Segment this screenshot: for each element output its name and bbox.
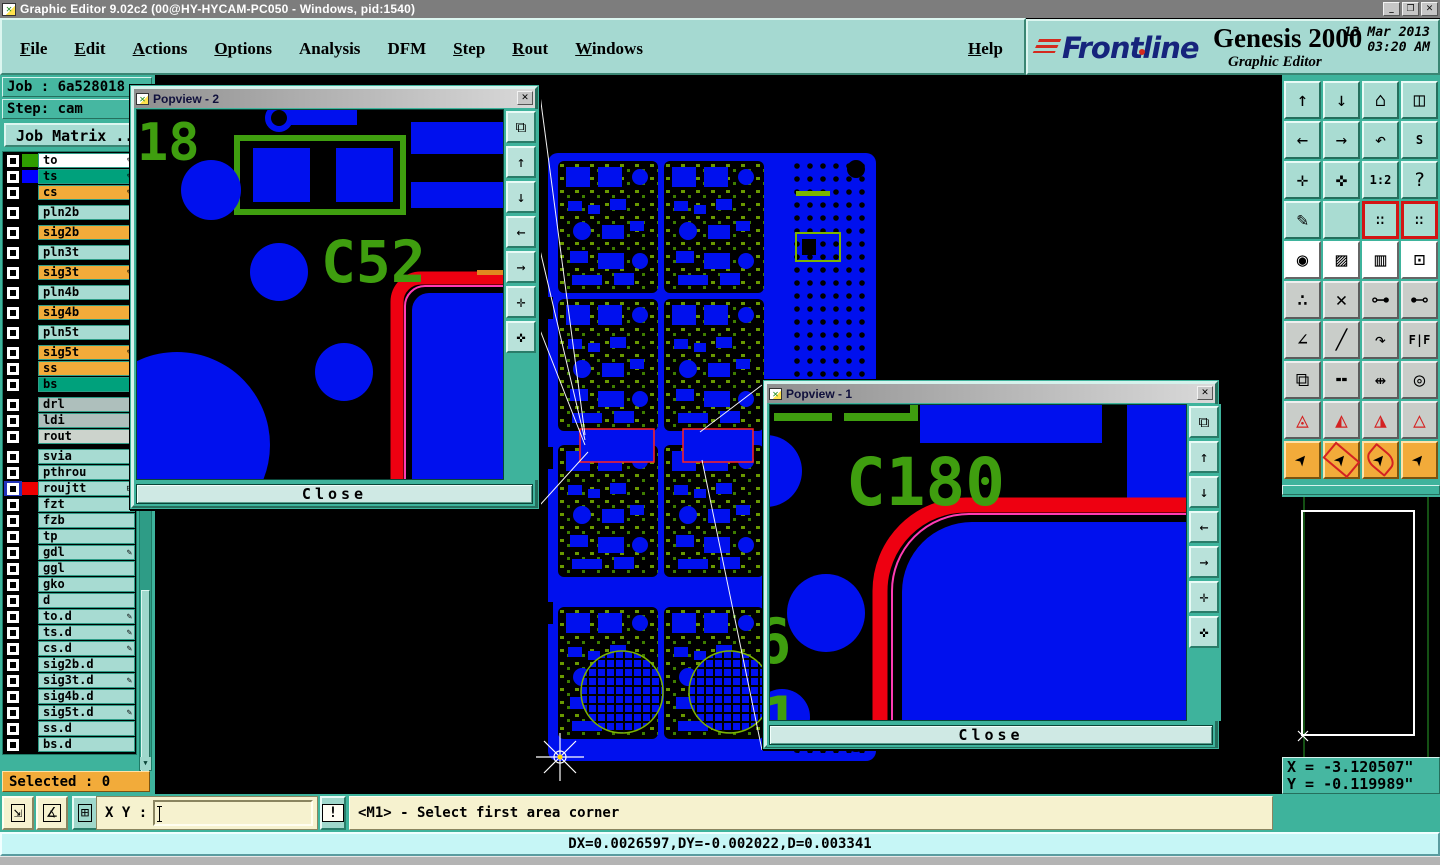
silkscreen-label: C180	[846, 444, 1005, 521]
pop-left-button[interactable]: ←	[506, 216, 536, 248]
layer-color-swatch[interactable]	[22, 206, 38, 219]
minimize-button[interactable]: _	[1383, 2, 1400, 16]
layer-color-swatch[interactable]	[22, 530, 38, 543]
layer-color-swatch[interactable]	[22, 642, 38, 655]
view-right-button[interactable]: →	[1323, 121, 1360, 159]
layer-name[interactable]: sig5t.d	[43, 706, 127, 719]
layer-row[interactable]: bs	[4, 377, 135, 392]
layer-name[interactable]: sig5t	[43, 346, 127, 359]
right-panel: ↑↓⌂◫←→↶S✛✜1:2?✎∷∷◉▨▥⊡∴✕⊶⊷∠╱↷F|F⧉╍⇹◎◬◭◮△➤…	[1282, 75, 1440, 832]
command-bar: ⇲∡⊞ X Y : ! <M1> - Select first area cor…	[0, 794, 1440, 832]
layer-name[interactable]: to.d	[43, 610, 127, 623]
move-feature-button[interactable]: ⊶	[1362, 281, 1399, 319]
pop-down-button[interactable]: ↓	[1189, 476, 1219, 508]
restore-button[interactable]: ❐	[1402, 2, 1419, 16]
item-options[interactable]: Options	[214, 39, 272, 59]
layer-color-swatch[interactable]	[22, 706, 38, 719]
layer-visibility-checkbox[interactable]	[4, 641, 22, 656]
popview-2-close-icon[interactable]: ✕	[517, 91, 533, 105]
layer-row[interactable]: pln3t	[4, 245, 135, 260]
frontline-logo: Frontline	[1062, 31, 1199, 65]
layer-name[interactable]: fzb	[43, 514, 132, 527]
merge-shapes-button[interactable]: ◎	[1401, 361, 1438, 399]
layer-visibility-checkbox[interactable]	[4, 245, 22, 260]
layer-visibility-checkbox[interactable]	[4, 625, 22, 640]
layer-name[interactable]: tp	[43, 530, 132, 543]
layer-name[interactable]: pln4b	[43, 286, 132, 299]
pop-up-button[interactable]: ↑	[506, 146, 536, 178]
layer-color-swatch[interactable]	[22, 226, 38, 239]
title-bar[interactable]: ✕ Graphic Editor 9.02c2 (00@HY-HYCAM-PC0…	[0, 0, 1440, 18]
layer-visibility-checkbox[interactable]	[4, 345, 22, 360]
dimension-button[interactable]: ⇹	[1362, 361, 1399, 399]
draw-line-button[interactable]: ╱	[1323, 321, 1360, 359]
silkscreen-partial-label: 18	[137, 113, 200, 173]
pop-right-button[interactable]: →	[1189, 546, 1219, 578]
select-in-poly-button[interactable]: ➤	[1362, 441, 1399, 479]
layer-visibility-checkbox[interactable]	[4, 225, 22, 240]
rotate-feature-button[interactable]: ↷	[1362, 321, 1399, 359]
net-probe-1-button[interactable]: ∷	[1362, 201, 1399, 239]
selected-count: Selected : 0	[2, 771, 150, 792]
item-windows[interactable]: Windows	[575, 39, 643, 59]
datetime: 13 Mar 2013 03:20 AM	[1344, 25, 1430, 55]
layer-name[interactable]: bs.d	[43, 738, 132, 751]
layer-visibility-checkbox[interactable]	[4, 413, 22, 428]
layer-row[interactable]: sig3t.d✎	[4, 673, 135, 688]
layer-name[interactable]: cs	[43, 186, 127, 199]
layer-name[interactable]: ggl	[43, 562, 132, 575]
dfm-check-4-button[interactable]: △	[1401, 401, 1438, 439]
layer-visibility-checkbox[interactable]	[4, 205, 22, 220]
layer-row[interactable]: d	[4, 593, 135, 608]
pop-window-button[interactable]: ⧉	[1189, 406, 1219, 438]
menu-bar: FileEditActionsOptionsAnalysisDFMStepRou…	[0, 18, 1026, 75]
layer-row[interactable]: to.d✎	[4, 609, 135, 624]
layer-visibility-checkbox[interactable]	[4, 361, 22, 376]
popview-2-toolbar: ⧉↑↓←→✛✜	[504, 109, 538, 480]
layer-row[interactable]: sig4b.d	[4, 689, 135, 704]
layer-visibility-checkbox[interactable]	[4, 529, 22, 544]
bottom-strip	[0, 856, 1440, 865]
layer-row[interactable]: pln2b	[4, 205, 135, 220]
layer-color-swatch[interactable]	[22, 658, 38, 671]
view-up-button[interactable]: ↑	[1284, 81, 1321, 119]
layer-color-swatch[interactable]	[22, 610, 38, 623]
layer-name[interactable]: svia	[43, 450, 132, 463]
view-left-button[interactable]: ←	[1284, 121, 1321, 159]
layer-row[interactable]: ts.d✎	[4, 625, 135, 640]
pop-zoom-in-button[interactable]: ✜	[506, 321, 536, 353]
layer-visibility-checkbox[interactable]	[4, 481, 22, 496]
graphic-editor-window: ✕ Graphic Editor 9.02c2 (00@HY-HYCAM-PC0…	[0, 0, 1440, 865]
chain-select-button[interactable]: ∴	[1284, 281, 1321, 319]
layer-color-swatch[interactable]	[22, 722, 38, 735]
zoom-center-button[interactable]: ✜	[1323, 161, 1360, 199]
serpentine-view-button[interactable]: S	[1401, 121, 1438, 159]
grid-toggle-button[interactable]	[1323, 201, 1360, 239]
layer-name[interactable]: cs.d	[43, 642, 127, 655]
layer-scroll-down-icon[interactable]: ▼	[140, 757, 151, 770]
product-subtitle: Graphic Editor	[1228, 54, 1322, 71]
view-down-button[interactable]: ↓	[1323, 81, 1360, 119]
grid-snap-button[interactable]: ⊞	[72, 796, 98, 830]
layer-name[interactable]: sig4b.d	[43, 690, 132, 703]
layer-name[interactable]: drl	[43, 398, 132, 411]
layer-row[interactable]: ss.d	[4, 721, 135, 736]
dfm-check-3-button[interactable]: ◮	[1362, 401, 1399, 439]
previous-view-button[interactable]: ↶	[1362, 121, 1399, 159]
layer-name[interactable]: sig2b	[43, 226, 132, 239]
popview-1-window[interactable]: ✕ Popview - 1 ✕ C180 6 1	[762, 379, 1220, 750]
layer-row[interactable]: ts✎	[4, 169, 135, 184]
overview-pane[interactable]	[1282, 497, 1440, 757]
layer-color-swatch[interactable]	[22, 626, 38, 639]
layer-color-swatch[interactable]	[22, 286, 38, 299]
layer-list: to✎ ts✎ cs✎ pln2b sig2b	[2, 151, 137, 755]
layer-row[interactable]: pln4b	[4, 285, 135, 300]
layer-row[interactable]: gdl✎	[4, 545, 135, 560]
layer-color-swatch[interactable]	[22, 482, 38, 495]
layer-name[interactable]: ss	[43, 362, 132, 375]
edit-tools-button[interactable]: ✎	[1284, 201, 1321, 239]
layer-color-swatch[interactable]	[22, 546, 38, 559]
duplicate-button[interactable]: ⧉	[1284, 361, 1321, 399]
layer-name[interactable]: pln3t	[43, 246, 132, 259]
layer-name[interactable]: ts.d	[43, 626, 127, 639]
popview-1-canvas[interactable]: C180 6 1	[769, 404, 1187, 721]
layer-row[interactable]: bs.d	[4, 737, 135, 752]
item-step[interactable]: Step	[453, 39, 485, 59]
layer-row[interactable]: ss	[4, 361, 135, 376]
measure-angle-button[interactable]: ∡	[36, 796, 68, 830]
layer-name[interactable]: sig2b.d	[43, 658, 132, 671]
pop-down-button[interactable]: ↓	[506, 181, 536, 213]
layer-color-swatch[interactable]	[22, 562, 38, 575]
popview-1-close-icon[interactable]: ✕	[1197, 386, 1213, 400]
layer-name[interactable]: roujtt	[43, 482, 127, 495]
layer-name[interactable]: gdl	[43, 546, 127, 559]
layer-color-swatch[interactable]	[22, 346, 38, 359]
select-symbol-button[interactable]: ◉	[1284, 241, 1321, 279]
measure-objects-button[interactable]: ▨	[1323, 241, 1360, 279]
popview-2-titlebar[interactable]: ✕ Popview - 2 ✕	[134, 89, 535, 108]
layer-visibility-checkbox[interactable]	[4, 185, 22, 200]
net-probe-2-button[interactable]: ∷	[1401, 201, 1438, 239]
job-matrix-button[interactable]: Job Matrix ..	[4, 123, 149, 147]
layer-visibility-checkbox[interactable]	[4, 285, 22, 300]
layer-color-swatch[interactable]	[22, 186, 38, 199]
layer-row[interactable]: ggl	[4, 561, 135, 576]
layer-row[interactable]: pln5t	[4, 325, 135, 340]
pop-right-button[interactable]: →	[506, 251, 536, 283]
layer-row[interactable]: tp	[4, 529, 135, 544]
pop-up-button[interactable]: ↑	[1189, 441, 1219, 473]
xy-entry-panel: X Y :	[96, 796, 318, 830]
layer-row[interactable]: to✎	[4, 153, 135, 168]
window-title: Graphic Editor 9.02c2 (00@HY-HYCAM-PC050…	[20, 2, 415, 16]
zoom-extents-button[interactable]: ✛	[1284, 161, 1321, 199]
layer-row[interactable]: rout	[4, 429, 135, 444]
popview-1-close-button[interactable]: Close	[769, 725, 1213, 745]
layer-row[interactable]: svia	[4, 449, 135, 464]
layer-marker-icon: ✎	[127, 628, 132, 638]
brand-panel: Frontline Genesis 2000 Graphic Editor 13…	[1026, 19, 1440, 75]
layer-color-swatch[interactable]	[22, 170, 38, 183]
stretch-line-button[interactable]: ╍	[1323, 361, 1360, 399]
layer-name[interactable]: rout	[43, 430, 132, 443]
prompt-message: <M1> - Select first area corner	[349, 796, 1273, 830]
popview-2-art: 18 C52	[137, 110, 503, 479]
layer-color-swatch[interactable]	[22, 154, 38, 167]
layer-color-swatch[interactable]	[22, 594, 38, 607]
delete-feature-button[interactable]: ✕	[1323, 281, 1360, 319]
select-pointer-button[interactable]: ➤	[1284, 441, 1321, 479]
layer-visibility-checkbox[interactable]	[4, 169, 22, 184]
popview-1-art: C180 6 1	[770, 405, 1186, 720]
silkscreen-partial-label: 6	[770, 605, 791, 678]
popview-1-titlebar[interactable]: ✕ Popview - 1 ✕	[767, 384, 1215, 403]
layer-visibility-checkbox[interactable]	[4, 305, 22, 320]
layer-name[interactable]: sig3t.d	[43, 674, 127, 687]
measure-diagonal-button[interactable]: ⇲	[2, 796, 34, 830]
layer-row[interactable]: cs.d✎	[4, 641, 135, 656]
layer-visibility-checkbox[interactable]	[4, 513, 22, 528]
layer-row[interactable]: sig2b	[4, 225, 135, 240]
layer-color-swatch[interactable]	[22, 690, 38, 703]
silkscreen-label: C52	[321, 228, 426, 296]
layer-row[interactable]: ldi	[4, 413, 135, 428]
close-button[interactable]: ✕	[1421, 2, 1438, 16]
layer-name[interactable]: d	[43, 594, 132, 607]
home-view-button[interactable]: ⌂	[1362, 81, 1399, 119]
layer-color-swatch[interactable]	[22, 466, 38, 479]
layer-name[interactable]: pthrou	[43, 466, 132, 479]
popview-1-title: Popview - 1	[786, 387, 852, 401]
pop-zoom-in-button[interactable]: ✜	[1189, 616, 1219, 648]
alert-button[interactable]: !	[320, 796, 346, 830]
layer-row[interactable]: cs✎	[4, 185, 135, 200]
popview-2-close-button[interactable]: Close	[136, 484, 533, 504]
layer-visibility-checkbox[interactable]	[4, 737, 22, 752]
layer-marker-icon: ✎	[127, 548, 132, 558]
xy-input[interactable]	[153, 800, 313, 826]
layer-visibility-checkbox[interactable]	[4, 465, 22, 480]
layer-name[interactable]: bs	[43, 378, 132, 391]
item-analysis[interactable]: Analysis	[299, 39, 360, 59]
copy-feature-button[interactable]: ⊷	[1401, 281, 1438, 319]
layer-visibility-checkbox[interactable]	[4, 657, 22, 672]
layer-visibility-checkbox[interactable]	[4, 577, 22, 592]
menu-help[interactable]: Help	[968, 39, 1003, 59]
layer-name[interactable]: pln2b	[43, 206, 132, 219]
layer-color-swatch[interactable]	[22, 246, 38, 259]
layer-name[interactable]: ts	[43, 170, 127, 183]
layer-color-swatch[interactable]	[22, 398, 38, 411]
ruler-button[interactable]: ▥	[1362, 241, 1399, 279]
select-in-rect-button[interactable]: ➤	[1323, 441, 1360, 479]
popview-2-canvas[interactable]: 18 C52	[136, 109, 504, 480]
silkscreen-partial-label: 1	[770, 683, 799, 720]
layer-visibility-checkbox[interactable]	[4, 561, 22, 576]
layer-name[interactable]: sig4b	[43, 306, 132, 319]
popview-icon: ✕	[769, 388, 782, 400]
item-file[interactable]: File	[20, 39, 47, 59]
item-rout[interactable]: Rout	[512, 39, 548, 59]
layer-row[interactable]: sig5t✎	[4, 345, 135, 360]
layer-visibility-checkbox[interactable]	[4, 325, 22, 340]
xy-label: X Y :	[97, 805, 153, 821]
layer-color-swatch[interactable]	[22, 378, 38, 391]
layer-row[interactable]: pthrou	[4, 465, 135, 480]
layer-color-swatch[interactable]	[22, 430, 38, 443]
layer-scrollbar-thumb[interactable]	[141, 590, 150, 778]
split-window-xy-button[interactable]: ◫	[1401, 81, 1438, 119]
layer-name[interactable]: ldi	[43, 414, 132, 427]
layer-visibility-checkbox[interactable]	[4, 609, 22, 624]
layer-row[interactable]: fzt	[4, 497, 135, 512]
pop-zoom-out-button[interactable]: ✛	[506, 286, 536, 318]
mirror-feature-button[interactable]: F|F	[1401, 321, 1438, 359]
layer-visibility-checkbox[interactable]	[4, 497, 22, 512]
layer-color-swatch[interactable]	[22, 738, 38, 751]
layer-color-swatch[interactable]	[22, 498, 38, 511]
layer-marker-icon: ✎	[127, 644, 132, 654]
layer-visibility-checkbox[interactable]	[4, 705, 22, 720]
zoom-1-2-button[interactable]: 1:2	[1362, 161, 1399, 199]
select-net-button[interactable]: ➤	[1401, 441, 1438, 479]
command-tools: ⇲∡⊞	[2, 794, 96, 832]
item-edit[interactable]: Edit	[74, 39, 105, 59]
layer-visibility-checkbox[interactable]	[4, 265, 22, 280]
toolbar-divider	[1282, 485, 1440, 495]
pop-window-button[interactable]: ⧉	[506, 111, 536, 143]
cursor-coordinates: X = -3.120507" Y = -0.119989"	[1282, 757, 1440, 794]
measure-angle-button[interactable]: ∠	[1284, 321, 1321, 359]
layer-visibility-checkbox[interactable]	[4, 449, 22, 464]
layer-visibility-checkbox[interactable]	[4, 545, 22, 560]
layer-row[interactable]: sig4b	[4, 305, 135, 320]
pop-zoom-out-button[interactable]: ✛	[1189, 581, 1219, 613]
layer-visibility-checkbox[interactable]	[4, 397, 22, 412]
item-dfm[interactable]: DFM	[387, 39, 426, 59]
pop-left-button[interactable]: ←	[1189, 511, 1219, 543]
layer-color-swatch[interactable]	[22, 514, 38, 527]
popview-2-window[interactable]: ✕ Popview - 2 ✕ 18 C	[129, 84, 540, 510]
layer-marker-icon: ✎	[127, 676, 132, 686]
layer-visibility-checkbox[interactable]	[4, 593, 22, 608]
layer-visibility-checkbox[interactable]	[4, 721, 22, 736]
layer-name[interactable]: gko	[43, 578, 132, 591]
layer-marker-icon: ✎	[127, 612, 132, 622]
layer-row[interactable]: roujtt⊞	[4, 481, 135, 496]
layer-color-swatch[interactable]	[22, 306, 38, 319]
layer-row[interactable]: sig5t.d✎	[4, 705, 135, 720]
layer-row[interactable]: sig3t✎	[4, 265, 135, 280]
layer-row[interactable]: fzb	[4, 513, 135, 528]
app-icon: ✕	[2, 3, 16, 16]
layer-visibility-checkbox[interactable]	[4, 689, 22, 704]
layer-visibility-checkbox[interactable]	[4, 429, 22, 444]
layer-row[interactable]: sig2b.d	[4, 657, 135, 672]
layer-name[interactable]: pln5t	[43, 326, 132, 339]
layer-marker-icon: ✎	[127, 708, 132, 718]
item-actions[interactable]: Actions	[133, 39, 188, 59]
select-single-button[interactable]: ⊡	[1401, 241, 1438, 279]
layer-color-swatch[interactable]	[22, 578, 38, 591]
layer-name[interactable]: to	[43, 154, 127, 167]
layer-name[interactable]: fzt	[43, 498, 132, 511]
delta-status-bar: DX=0.0026597,DY=-0.002022,D=0.003341	[0, 832, 1440, 856]
layer-visibility-checkbox[interactable]	[4, 377, 22, 392]
dfm-check-1-button[interactable]: ◬	[1284, 401, 1321, 439]
layer-color-swatch[interactable]	[22, 326, 38, 339]
layer-color-swatch[interactable]	[22, 414, 38, 427]
layer-row[interactable]: drl	[4, 397, 135, 412]
menu-items: FileEditActionsOptionsAnalysisDFMStepRou…	[20, 39, 643, 59]
product-name: Genesis 2000	[1213, 23, 1362, 54]
layer-color-swatch[interactable]	[22, 362, 38, 375]
layer-color-swatch[interactable]	[22, 266, 38, 279]
text-caret	[159, 806, 160, 822]
main-toolbar: ↑↓⌂◫←→↶S✛✜1:2?✎∷∷◉▨▥⊡∴✕⊶⊷∠╱↷F|F⧉╍⇹◎◬◭◮△➤…	[1283, 80, 1439, 480]
dfm-check-2-button[interactable]: ◭	[1323, 401, 1360, 439]
layer-visibility-checkbox[interactable]	[4, 153, 22, 168]
layer-name[interactable]: ss.d	[43, 722, 132, 735]
layer-name[interactable]: sig3t	[43, 266, 127, 279]
popview-icon: ✕	[136, 93, 149, 105]
context-help-button[interactable]: ?	[1401, 161, 1438, 199]
overview-art	[1282, 497, 1440, 757]
layer-color-swatch[interactable]	[22, 450, 38, 463]
popview-1-toolbar: ⧉↑↓←→✛✜	[1187, 404, 1221, 721]
popview-2-title: Popview - 2	[153, 92, 219, 106]
layer-row[interactable]: gko	[4, 577, 135, 592]
layer-visibility-checkbox[interactable]	[4, 673, 22, 688]
layer-color-swatch[interactable]	[22, 674, 38, 687]
